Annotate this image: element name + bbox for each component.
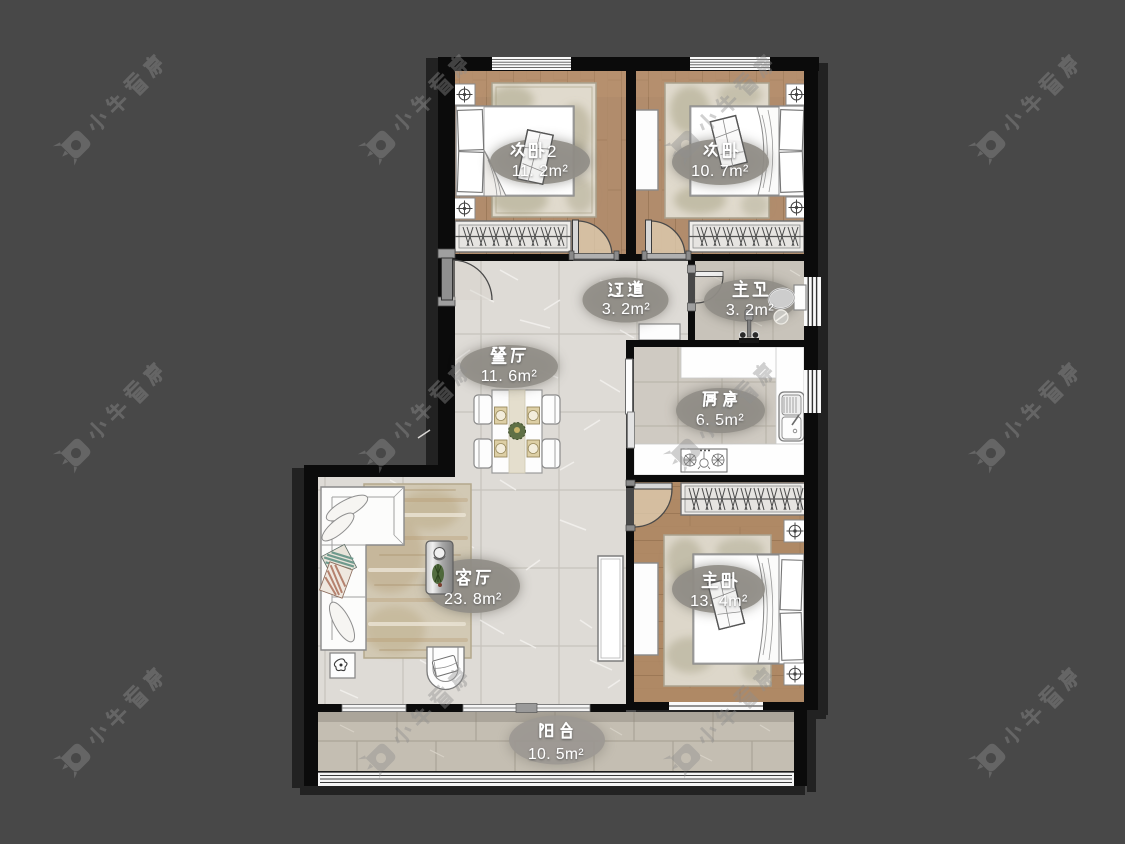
svg-text:23. 8m²: 23. 8m²: [444, 591, 502, 608]
svg-text:3. 2m²: 3. 2m²: [602, 301, 651, 318]
svg-text:3. 2m²: 3. 2m²: [726, 302, 775, 319]
svg-text:10. 5m²: 10. 5m²: [528, 746, 584, 763]
svg-text:13. 4m²: 13. 4m²: [690, 593, 748, 610]
svg-text:11. 6m²: 11. 6m²: [481, 368, 538, 385]
svg-text:11. 2m²: 11. 2m²: [512, 163, 569, 180]
svg-text:10. 7m²: 10. 7m²: [691, 163, 749, 180]
svg-text:2: 2: [547, 142, 556, 161]
